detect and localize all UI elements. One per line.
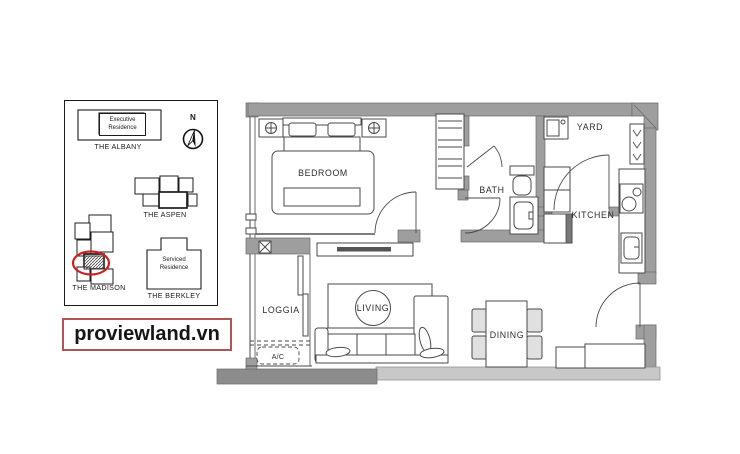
tv-console [317, 243, 413, 256]
bath-sink-icon [510, 197, 538, 234]
watermark-text: proviewland.vn [74, 323, 220, 346]
ac-label: A/C [272, 354, 285, 361]
bedroom-furniture [259, 114, 464, 214]
dining-chair [472, 309, 487, 332]
yard-label: YARD [577, 122, 603, 132]
watermark-box: proviewland.vn [62, 318, 232, 351]
loggia-top-wall [246, 238, 310, 254]
tv-icon [337, 247, 391, 252]
berkley-name-label: THE BERKLEY [144, 291, 204, 300]
dining-chair [527, 336, 542, 359]
toilet-icon [510, 166, 534, 195]
berkley-type-label: Serviced Residence [154, 256, 194, 274]
wardrobe [436, 114, 464, 189]
bath-fixtures [510, 166, 538, 234]
yard-fixtures [544, 117, 570, 212]
entrance-door-arc [596, 283, 640, 327]
dining-chair [527, 309, 542, 332]
site-map-inset: N Executive Residence Serviced Residence… [64, 100, 218, 306]
loggia-label: LOGGIA [262, 305, 299, 315]
madison-name-label: THE MADISON [65, 283, 133, 292]
right-exterior-wall [644, 128, 656, 273]
fridge-icon [544, 214, 572, 243]
entry-bench [556, 344, 645, 368]
building-cluster-aspen [135, 176, 197, 208]
bath-label: BATH [479, 185, 504, 195]
north-label: N [186, 113, 200, 122]
stove-icon [620, 184, 643, 213]
pillow [289, 123, 316, 136]
pillow [328, 123, 355, 136]
double-bed [272, 118, 374, 214]
floor-plan: BEDROOM BATH YARD KITCHEN LOGGIA LIVING … [210, 88, 670, 400]
washing-machine-icon [544, 117, 568, 139]
vent-louver-icon [630, 124, 644, 164]
sliding-door-panel [298, 256, 303, 295]
bath-door-arc [465, 198, 500, 233]
highlighted-unit [84, 256, 104, 269]
bedroom-label: BEDROOM [298, 168, 348, 178]
aspen-name-label: THE ASPEN [135, 210, 195, 219]
nightstand-left [259, 119, 283, 137]
balcony-slab [217, 369, 377, 384]
dining-label: DINING [490, 330, 524, 340]
nightstand-right [362, 119, 386, 137]
living-label: LIVING [357, 303, 389, 313]
albany-name-label: THE ALBANY [83, 142, 153, 151]
shower-door-arc [467, 146, 502, 167]
kitchen-sink-icon [621, 233, 642, 263]
kitchen-label: KITCHEN [572, 210, 615, 220]
dining-chair [472, 336, 487, 359]
bedroom-door-arc [375, 192, 416, 233]
floorplan-page: N Executive Residence Serviced Residence… [0, 0, 740, 454]
sliding-door-panel [303, 294, 308, 336]
albany-type-label: Executive Residence [99, 113, 146, 136]
bottom-wall-right [376, 367, 660, 380]
compass-icon [184, 129, 203, 148]
floor-drain-icon [259, 241, 271, 253]
